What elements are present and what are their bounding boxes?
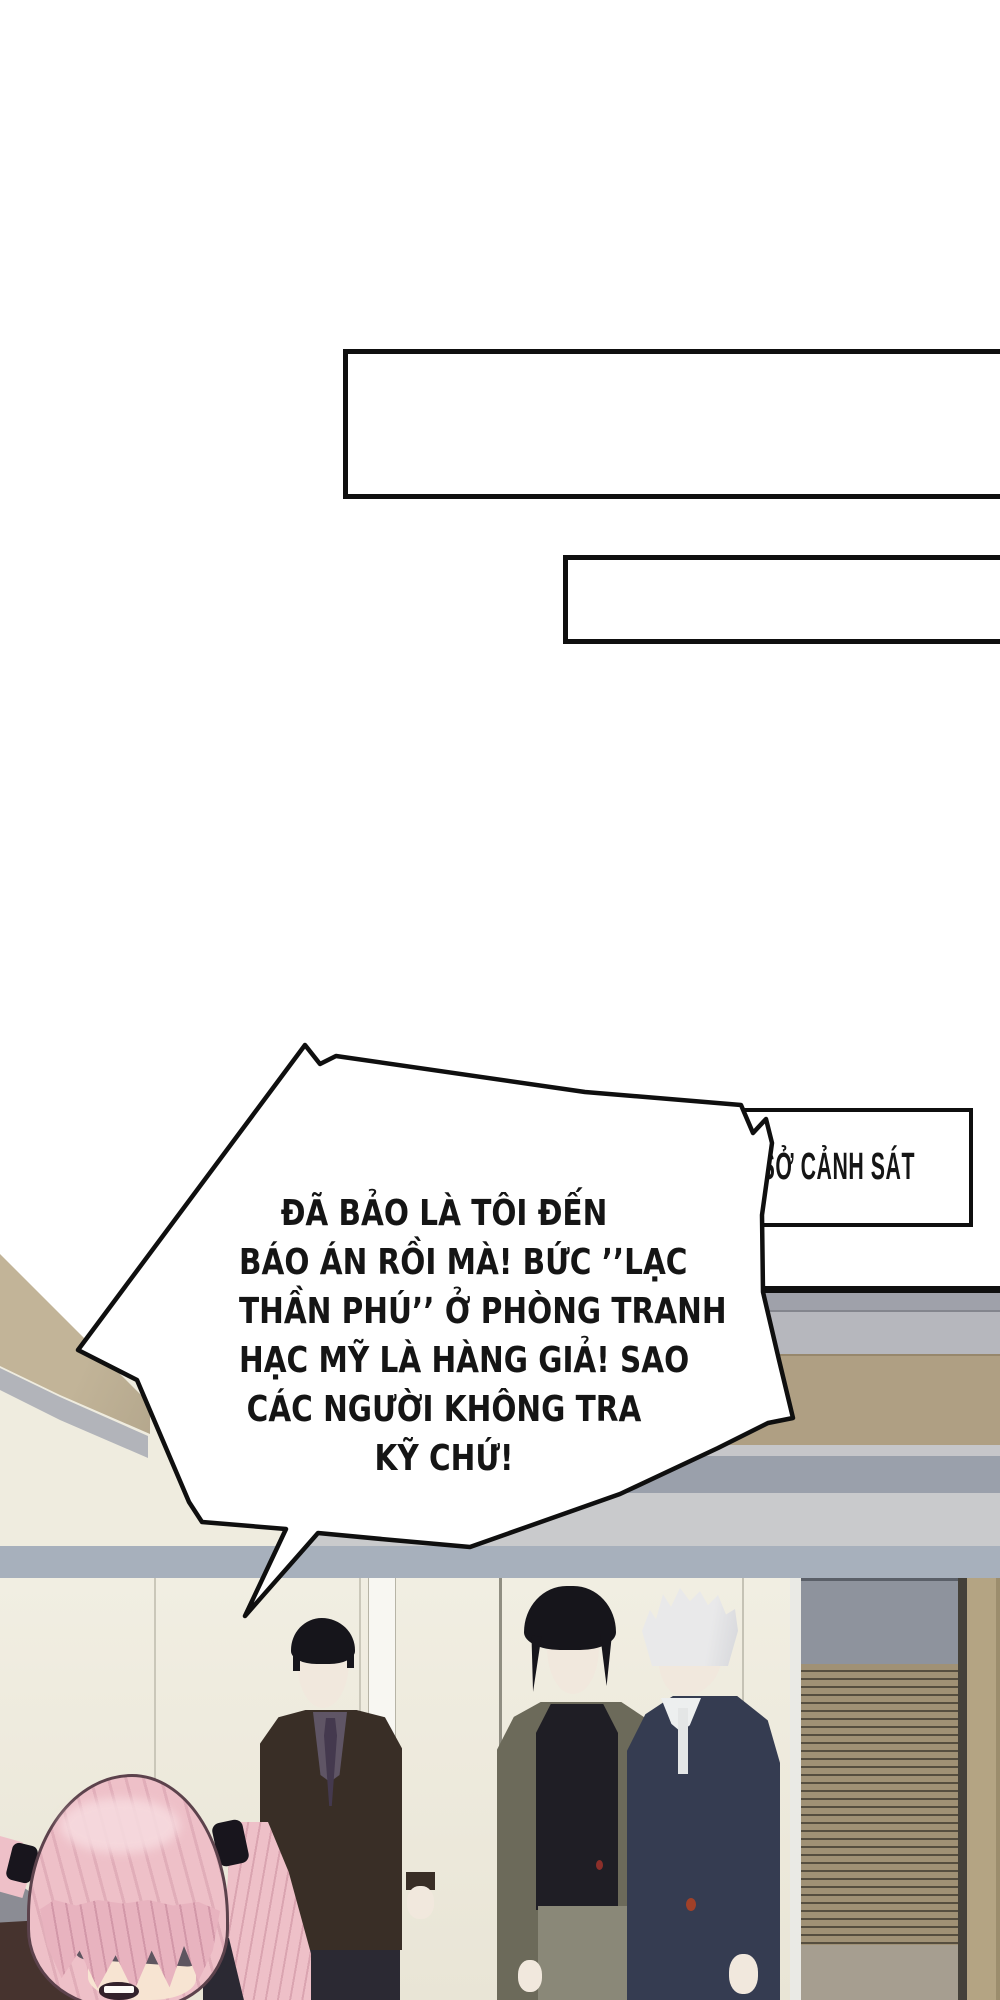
partition-divider [958,1578,967,2000]
bubble-line: ĐÃ BẢO LÀ TÔI ĐẾN [239,1189,649,1238]
bubble-line: THẦN PHÚ’’ Ở PHÒNG TRANH [239,1287,649,1336]
hair-highlight [60,1798,180,1853]
caption-box-1 [343,349,1000,499]
bubble-line: KỸ CHỨ! [239,1434,649,1483]
fist [407,1886,434,1919]
wood-panel [967,1578,1000,2000]
black-shirt [536,1704,618,1910]
bubble-line: CÁC NGƯỜI KHÔNG TRA [239,1385,649,1434]
trousers [538,1906,630,2000]
partition-glass [801,1578,958,1664]
bubble-line: HẠC MỸ LÀ HÀNG GIẢ! SAO [239,1336,649,1385]
blinds-base-panel [801,1945,958,2000]
gritted-teeth [104,1986,134,1993]
fist [729,1954,758,1994]
hand [518,1960,542,1992]
red-spot [686,1898,696,1911]
comic-page: SỞ CẢNH SÁT [0,0,1000,2000]
bubble-line: BÁO ÁN RỒI MÀ! BỨC ’’LẠC [239,1238,649,1287]
red-spot [596,1860,603,1870]
speech-bubble-text: ĐÃ BẢO LÀ TÔI ĐẾN BÁO ÁN RỒI MÀ! BỨC ’’L… [194,1189,694,1483]
caption-box-2 [563,555,1000,644]
window-blinds [801,1664,958,1945]
